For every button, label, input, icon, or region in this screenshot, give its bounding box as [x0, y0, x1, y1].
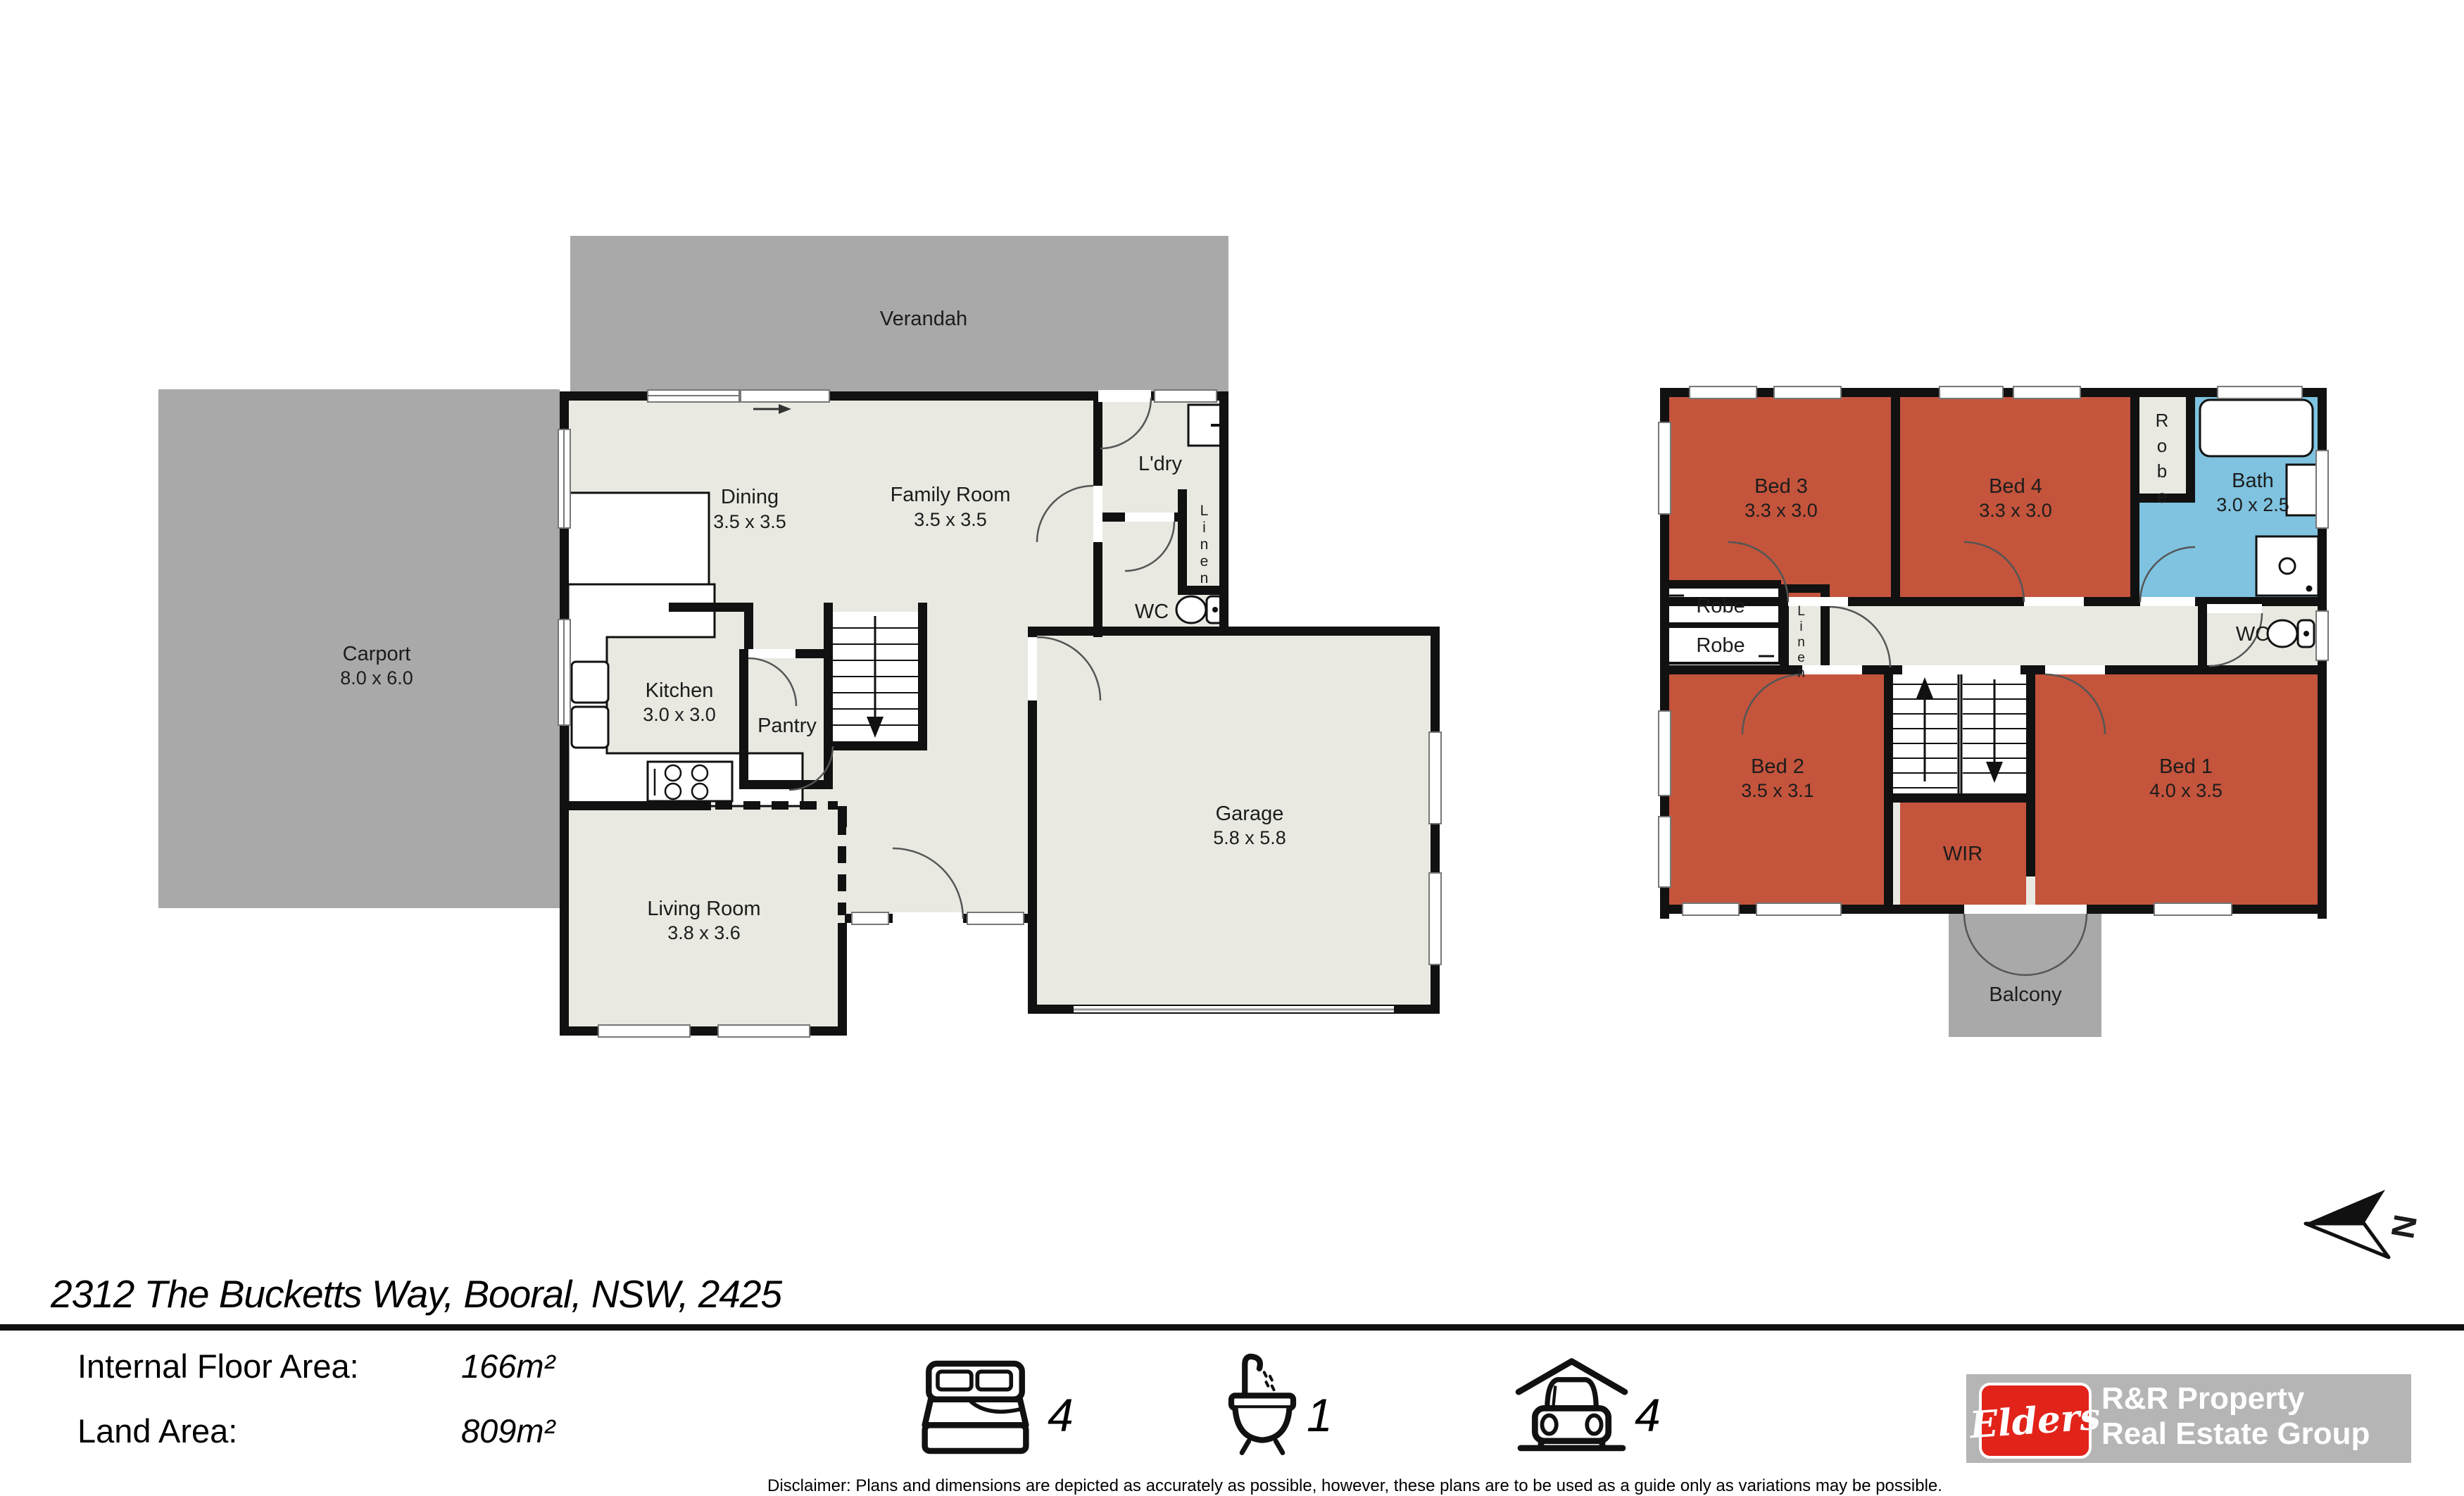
- bed3-label: Bed 3: [1754, 475, 1808, 498]
- robe-b-label: Robe: [1696, 634, 1745, 657]
- bed3-dims: 3.3 x 3.0: [1745, 500, 1818, 521]
- carport-label: Carport: [343, 643, 411, 665]
- wc-label: WC: [1135, 601, 1169, 623]
- bed4-label: Bed 4: [1989, 475, 2042, 498]
- living-room-label: Living Room: [647, 898, 760, 920]
- stairs-first: [1893, 670, 2026, 803]
- elders-logo-box: Elders: [1979, 1383, 2092, 1459]
- bed-icon: [921, 1357, 1030, 1457]
- wc-first-label: WC: [2236, 623, 2270, 646]
- kitchen-label: Kitchen: [646, 679, 714, 702]
- agency-line2: Real Estate Group: [2101, 1416, 2370, 1452]
- divider-line: [0, 1324, 2464, 1331]
- living-room-dims: 3.8 x 3.6: [667, 922, 741, 943]
- laundry-basin-icon: [1188, 405, 1222, 446]
- bed2-dims: 3.5 x 3.1: [1741, 780, 1814, 801]
- bed4-dims: 3.3 x 3.0: [1979, 500, 2052, 521]
- kitchen-dims: 3.0 x 3.0: [643, 704, 716, 725]
- bath-count: 1: [1307, 1388, 1333, 1442]
- robe-top-label: Robe: [2151, 410, 2173, 511]
- bed2-label: Bed 2: [1751, 755, 1804, 778]
- laundry-label: L'dry: [1138, 453, 1182, 475]
- garage-dims: 5.8 x 5.8: [1213, 827, 1286, 848]
- wc-toilet-icon-first: [2268, 620, 2314, 647]
- disclaimer-text: Disclaimer: Plans and dimensions are dep…: [767, 1476, 1942, 1496]
- bed1-dims: 4.0 x 3.5: [2149, 780, 2223, 801]
- linen-first-label: Linen: [1793, 604, 1809, 681]
- first-floor-plan: Bed 3 3.3 x 3.0 Bed 4 3.3 x 3.0 Bath 3.0…: [1654, 384, 2334, 1045]
- wc-toilet-icon: [1176, 596, 1223, 623]
- agency-line1: R&R Property: [2101, 1381, 2370, 1416]
- internal-area-label: Internal Floor Area:: [77, 1347, 359, 1385]
- pantry-label: Pantry: [758, 715, 817, 737]
- family-room-label: Family Room: [891, 484, 1011, 506]
- bed1-label: Bed 1: [2159, 755, 2213, 778]
- family-room-dims: 3.5 x 3.5: [914, 509, 987, 530]
- bath-dims: 3.0 x 2.5: [2216, 494, 2289, 515]
- floorplan-page: Verandah Carport 8.0 x 6.0 Dining 3.5 x …: [0, 0, 2464, 1496]
- property-address: 2312 The Bucketts Way, Booral, NSW, 2425: [51, 1271, 781, 1316]
- agency-logo: Elders R&R Property Real Estate Group: [1966, 1374, 2411, 1463]
- robe-a-label: Robe: [1696, 595, 1745, 617]
- balcony-label: Balcony: [1989, 983, 2062, 1006]
- verandah-label: Verandah: [880, 308, 967, 330]
- bath-icon: [1224, 1346, 1301, 1459]
- carport-dims: 8.0 x 6.0: [340, 667, 413, 689]
- internal-area-value: 166m²: [461, 1347, 555, 1385]
- car-garage-icon: [1507, 1355, 1637, 1457]
- land-area-value: 809m²: [461, 1412, 555, 1450]
- bath-label: Bath: [2232, 470, 2274, 492]
- ground-floor-plan: Verandah Carport 8.0 x 6.0 Dining 3.5 x …: [158, 232, 1443, 1038]
- bed-count: 4: [1048, 1388, 1074, 1442]
- garage-label: Garage: [1216, 803, 1284, 825]
- dining-label: Dining: [721, 486, 779, 508]
- land-area-label: Land Area:: [77, 1412, 237, 1450]
- north-letter: N: [2384, 1212, 2424, 1241]
- linen-ground-label: Linen: [1195, 503, 1212, 587]
- wir-label: WIR: [1943, 843, 1982, 865]
- agency-name: R&R Property Real Estate Group: [2101, 1381, 2370, 1452]
- north-arrow: N: [2292, 1174, 2432, 1266]
- elders-logo-text: Elders: [1968, 1395, 2101, 1447]
- stairs-ground: [833, 612, 918, 741]
- car-count: 4: [1635, 1388, 1661, 1442]
- dining-dims: 3.5 x 3.5: [713, 511, 786, 532]
